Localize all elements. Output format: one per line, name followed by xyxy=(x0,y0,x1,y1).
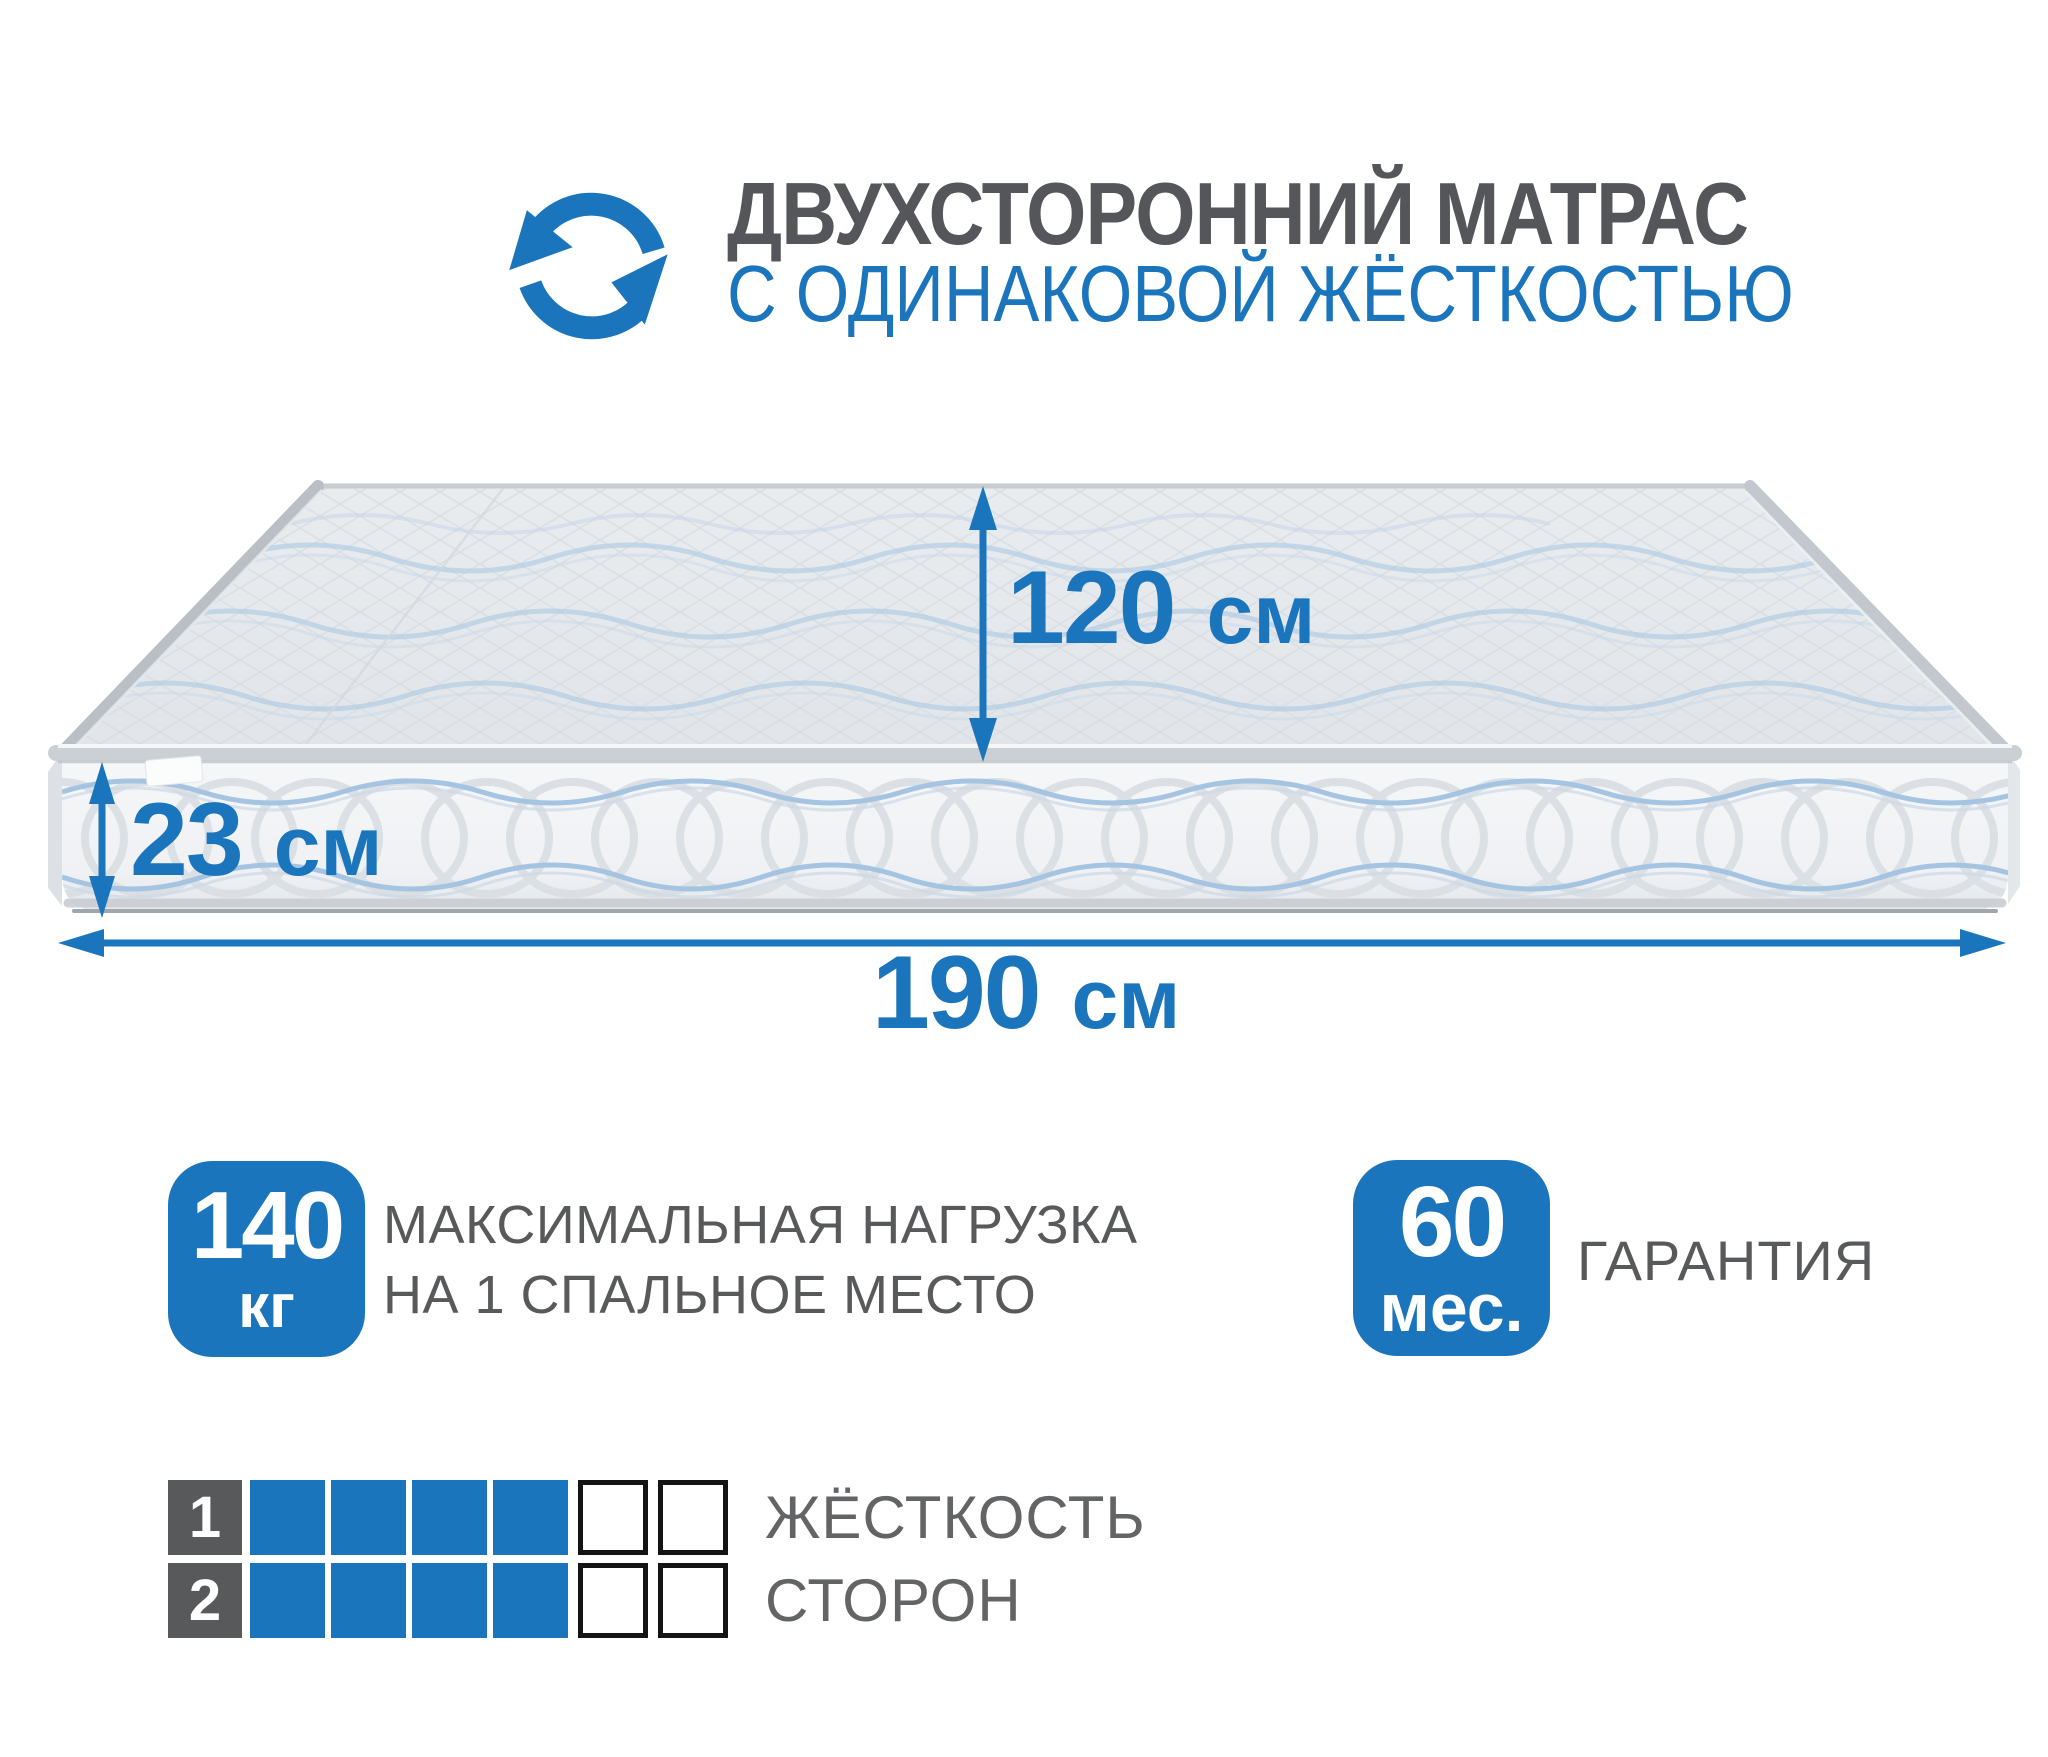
max-load-caption: МАКСИМАЛЬНАЯ НАГРУЗКА НА 1 СПАЛЬНОЕ МЕСТ… xyxy=(383,1190,1138,1330)
width-value: 120 xyxy=(1007,556,1175,660)
warranty-badge: 60 мес. xyxy=(1353,1160,1550,1356)
mattress-illustration xyxy=(30,430,2048,990)
mattress-left-side xyxy=(48,752,62,906)
firmness-filled-square xyxy=(331,1480,406,1555)
firmness-filled-square xyxy=(331,1563,406,1638)
firmness-caption: ЖЁСТКОСТЬ СТОРОН xyxy=(765,1480,1146,1646)
firmness-filled-square xyxy=(412,1563,487,1638)
height-value: 23 xyxy=(130,788,242,892)
page-subtitle: С ОДИНАКОВОЙ ЖЁСТКОСТЬЮ xyxy=(727,254,1794,334)
firmness-row-side-2: 2 xyxy=(168,1563,734,1638)
length-value: 190 xyxy=(872,941,1040,1045)
length-dimension-label: 190 см xyxy=(872,941,1180,1045)
width-dimension-label: 120 см xyxy=(1007,556,1315,660)
firmness-filled-square xyxy=(493,1563,568,1638)
firmness-empty-square xyxy=(658,1563,728,1638)
max-load-unit: кг xyxy=(238,1276,295,1338)
max-load-caption-line1: МАКСИМАЛЬНАЯ НАГРУЗКА xyxy=(383,1190,1138,1260)
height-unit: см xyxy=(274,804,383,888)
firmness-caption-line2: СТОРОН xyxy=(765,1563,1146,1638)
height-dimension-label: 23 см xyxy=(130,788,383,892)
firmness-row-side-1: 1 xyxy=(168,1480,734,1555)
firmness-filled-square xyxy=(250,1480,325,1555)
max-load-caption-line2: НА 1 СПАЛЬНОЕ МЕСТО xyxy=(383,1260,1138,1330)
firmness-scale-side-2 xyxy=(250,1563,734,1638)
max-load-badge: 140 кг xyxy=(168,1161,365,1357)
firmness-filled-square xyxy=(250,1563,325,1638)
warranty-caption: ГАРАНТИЯ xyxy=(1577,1226,1875,1296)
firmness-empty-square xyxy=(578,1563,648,1638)
warranty-value: 60 xyxy=(1399,1175,1504,1270)
firmness-filled-square xyxy=(412,1480,487,1555)
max-load-value: 140 xyxy=(191,1180,342,1271)
side-number-badge: 1 xyxy=(168,1480,242,1555)
length-unit: см xyxy=(1072,957,1181,1041)
infographic-canvas: ДВУХСТОРОННИЙ МАТРАС С ОДИНАКОВОЙ ЖЁСТКО… xyxy=(0,0,2048,1757)
warranty-unit: мес. xyxy=(1380,1274,1524,1342)
firmness-caption-line1: ЖЁСТКОСТЬ xyxy=(765,1480,1146,1555)
firmness-scale-side-1 xyxy=(250,1480,734,1555)
firmness-empty-square xyxy=(658,1480,728,1555)
page-title: ДВУХСТОРОННИЙ МАТРАС xyxy=(727,170,1748,258)
firmness-empty-square xyxy=(578,1480,648,1555)
rotate-arrows-icon xyxy=(504,168,680,344)
width-unit: см xyxy=(1207,572,1316,656)
firmness-filled-square xyxy=(493,1480,568,1555)
side-number-badge: 2 xyxy=(168,1563,242,1638)
mattress-right-side xyxy=(2008,752,2020,904)
